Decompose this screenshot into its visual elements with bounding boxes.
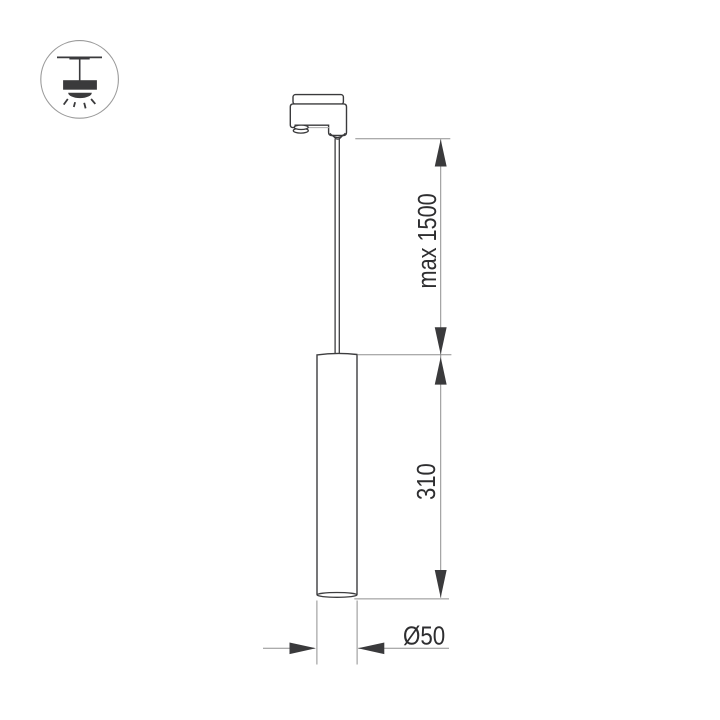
svg-text:max 1500: max 1500: [413, 193, 442, 288]
svg-text:Ø50: Ø50: [403, 622, 445, 651]
svg-text:310: 310: [412, 463, 441, 500]
